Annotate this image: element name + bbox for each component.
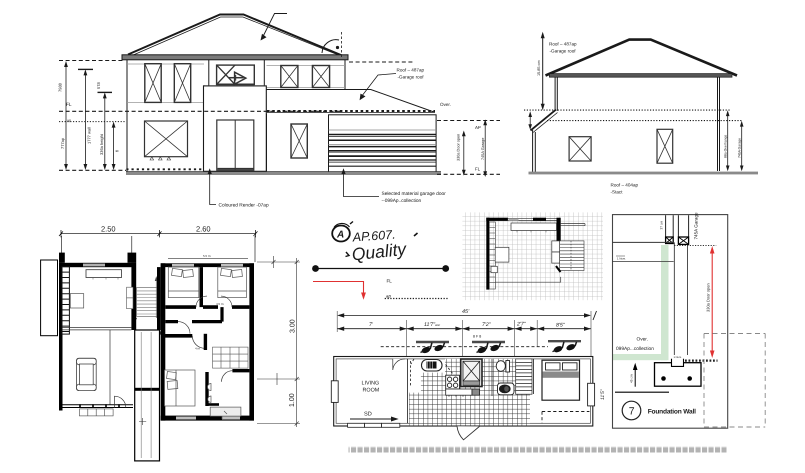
svg-text:Foundation Wall: Foundation Wall <box>648 409 696 416</box>
svg-text:ap: ap <box>386 294 392 299</box>
svg-text:4.5 m: 4.5 m <box>216 302 224 306</box>
svg-text:Roof – 487ap: Roof – 487ap <box>397 68 425 73</box>
svg-text:2.60: 2.60 <box>196 225 211 234</box>
svg-text:-Garage roof: -Garage roof <box>398 75 425 80</box>
svg-text:FL: FL <box>66 102 72 108</box>
svg-text:ap: ap <box>67 119 71 123</box>
svg-text:LIVING: LIVING <box>362 381 380 387</box>
svg-text:7988: 7988 <box>58 82 63 92</box>
svg-text:--099Ap..collection: --099Ap..collection <box>382 198 422 204</box>
svg-text:1.00: 1.00 <box>289 393 296 407</box>
svg-text:15.85 cm: 15.85 cm <box>537 60 541 76</box>
svg-text:SD: SD <box>364 412 372 418</box>
svg-text:45': 45' <box>462 309 470 315</box>
svg-text:3.00: 3.00 <box>290 319 297 333</box>
svg-text:ROOM: ROOM <box>363 388 380 394</box>
svg-text:fl: fl <box>115 150 120 152</box>
svg-text:745A Garage: 745A Garage <box>694 212 699 240</box>
svg-text:2'7": 2'7" <box>516 322 527 328</box>
svg-text:11'5": 11'5" <box>600 389 606 400</box>
svg-text:578: 578 <box>96 82 101 89</box>
svg-text:099Ap...collection: 099Ap...collection <box>616 346 654 352</box>
svg-text:2.50: 2.50 <box>101 225 116 234</box>
svg-text:Over.: Over. <box>637 337 648 343</box>
svg-text:745A Garage: 745A Garage <box>481 138 485 160</box>
svg-text:1777 wall: 1777 wall <box>87 127 92 144</box>
svg-text:Over.: Over. <box>440 102 451 107</box>
svg-text:336a height: 336a height <box>99 133 104 155</box>
svg-text:745A Garage: 745A Garage <box>738 138 742 158</box>
svg-text:330a Door open: 330a Door open <box>706 283 711 312</box>
svg-text:5.5 m: 5.5 m <box>203 254 211 258</box>
svg-text:330a Door open: 330a Door open <box>457 134 461 161</box>
svg-text:Roof – 487ap: Roof – 487ap <box>549 42 577 47</box>
svg-text:1 Num.: 1 Num. <box>674 356 683 359</box>
svg-text:-Stact: -Stact <box>611 190 624 195</box>
svg-text:Coloured Render -07ap: Coloured Render -07ap <box>219 203 269 209</box>
svg-text:-Garage roof: -Garage roof <box>550 49 577 54</box>
svg-text:45 cm: 45 cm <box>630 374 634 383</box>
svg-text:8'5": 8'5" <box>556 323 566 329</box>
svg-text:1 Num.: 1 Num. <box>617 256 626 260</box>
svg-text:777ap: 777ap <box>60 137 65 149</box>
svg-text:8 F 8: 8 F 8 <box>473 335 481 339</box>
svg-text:AP: AP <box>475 125 481 130</box>
svg-text:7: 7 <box>629 406 635 418</box>
svg-text:Roof – 404ap: Roof – 404ap <box>611 183 639 188</box>
svg-text:37 cm: 37 cm <box>660 220 664 229</box>
svg-text:FL: FL <box>387 279 393 284</box>
svg-text:FL: FL <box>475 167 481 172</box>
svg-text:7'2": 7'2" <box>482 322 492 328</box>
svg-text:88a Overhangs: 88a Overhangs <box>724 135 728 158</box>
svg-text:Selected material garage door: Selected material garage door <box>382 191 447 197</box>
svg-text:A: A <box>336 230 344 241</box>
